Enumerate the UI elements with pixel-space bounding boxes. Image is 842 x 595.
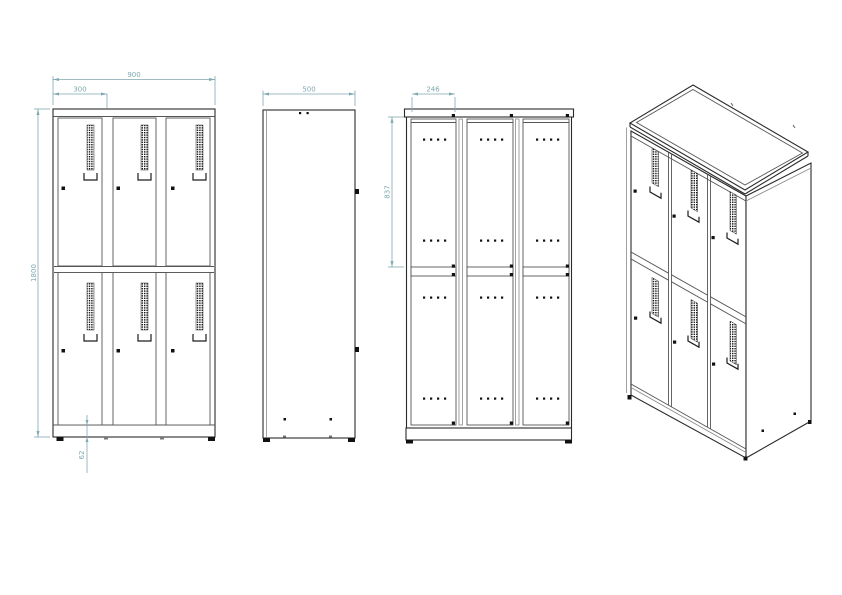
- screw-dot: [762, 430, 765, 433]
- vent-grille: [730, 192, 737, 235]
- screw-dot: [299, 112, 301, 114]
- dimension-front-column-width: 300: [53, 86, 107, 109]
- screw-dot: [794, 413, 797, 416]
- front-view: [53, 109, 215, 441]
- rear-mid-rail-1: [411, 267, 456, 276]
- door-lock: [712, 236, 715, 239]
- dimension-front-height: 1800: [30, 109, 50, 437]
- door-lock: [171, 187, 175, 191]
- vent-grille: [691, 170, 698, 212]
- foot: [263, 438, 270, 442]
- hinge-mark: [452, 265, 455, 268]
- hinge-mark: [510, 114, 513, 117]
- iso-side-face: [746, 163, 811, 458]
- dimension-label: 837: [384, 185, 392, 198]
- vent-grille: [730, 321, 737, 365]
- dimension-label: 1800: [30, 264, 38, 282]
- dimension-rear-door-width: 246: [412, 86, 455, 113]
- front-door-lower-3: [166, 273, 210, 426]
- rear-view: [405, 109, 574, 444]
- screw-dot: [307, 112, 309, 114]
- rear-mid-rail-2: [467, 267, 513, 276]
- partition-strip: [459, 119, 463, 425]
- rim-tick: [731, 103, 733, 106]
- foot: [208, 437, 215, 441]
- vent-grille: [87, 283, 94, 330]
- base-mark: [283, 436, 286, 438]
- side-view: [263, 110, 359, 442]
- rim-tick: [793, 125, 795, 128]
- hinge-mark: [452, 114, 455, 117]
- door-lock: [62, 349, 66, 353]
- front-door-lower-2: [113, 273, 156, 426]
- hinge-mark: [452, 422, 455, 425]
- vent-grille: [196, 283, 203, 330]
- foot: [160, 437, 164, 440]
- screw-dot: [284, 418, 287, 421]
- hinge-mark: [566, 114, 569, 117]
- dimension-label: 62: [78, 451, 86, 460]
- hinge-mark: [510, 422, 513, 425]
- dimension-label: 300: [73, 86, 86, 94]
- rear-mid-rail-3: [523, 267, 569, 276]
- dimension-label: 500: [302, 86, 315, 94]
- hinge-mark: [566, 422, 569, 425]
- front-door-upper-3: [166, 118, 210, 266]
- partition-strip: [516, 119, 520, 425]
- vent-grille: [87, 125, 94, 170]
- hinge-mark: [510, 265, 513, 268]
- dimension-side-depth: 500: [263, 86, 355, 107]
- hinge-mark: [566, 265, 569, 268]
- door-lock: [117, 349, 121, 353]
- vent-grille: [691, 300, 698, 343]
- foot: [744, 457, 748, 461]
- foot: [348, 438, 355, 442]
- vent-grille: [652, 148, 659, 187]
- foot: [628, 395, 632, 400]
- front-door-upper-2: [113, 118, 156, 266]
- front-door-lower-1: [58, 273, 102, 426]
- hinge-mark: [566, 273, 569, 276]
- door-lock: [171, 349, 175, 353]
- screw-dot: [330, 418, 333, 421]
- door-lock: [117, 187, 121, 191]
- door-lock: [62, 187, 66, 191]
- door-lock: [673, 215, 676, 218]
- hinge-tab: [355, 347, 359, 352]
- vent-grille: [141, 125, 148, 170]
- technical-drawing-canvas: 900 300 1800 62: [0, 0, 842, 595]
- foot: [406, 440, 413, 444]
- door-lock: [673, 341, 676, 344]
- rear-bottom-band: [406, 428, 572, 440]
- door-lock: [712, 363, 715, 366]
- base-mark: [329, 436, 332, 438]
- side-panel-outline: [263, 110, 355, 438]
- vent-grille: [652, 278, 659, 318]
- door-lock: [634, 317, 637, 320]
- dimension-label: 900: [127, 71, 140, 79]
- vent-grille: [196, 125, 203, 170]
- isometric-view: [627, 85, 812, 461]
- dimension-label: 246: [426, 86, 440, 94]
- hinge-tab: [355, 189, 359, 194]
- vent-grille: [141, 283, 148, 330]
- hinge-mark: [452, 273, 455, 276]
- dimension-rear-door-height: 837: [384, 117, 405, 267]
- foot: [808, 420, 812, 424]
- rear-top-band: [405, 109, 574, 117]
- foot: [565, 440, 572, 444]
- foot: [104, 437, 108, 440]
- front-door-upper-1: [58, 118, 102, 266]
- foot: [57, 437, 64, 441]
- locker-drawing-svg: 900 300 1800 62: [0, 0, 842, 595]
- door-lock: [634, 190, 637, 193]
- hinge-mark: [510, 273, 513, 276]
